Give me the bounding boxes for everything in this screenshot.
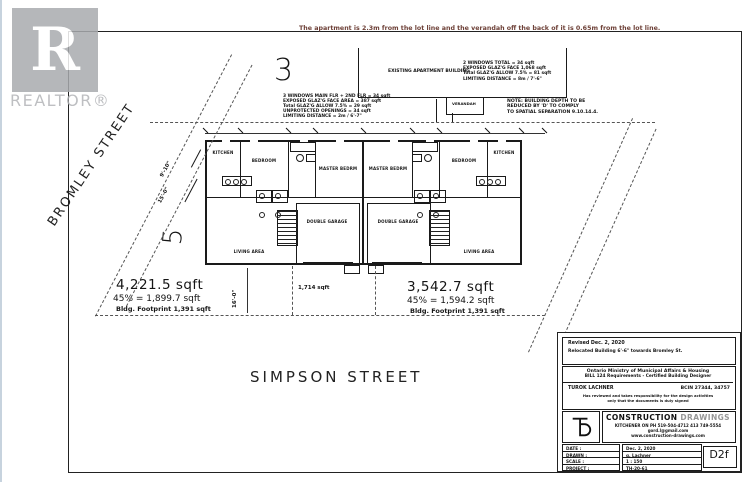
bathtub-symbol bbox=[290, 142, 316, 152]
room-label-living-left: LIVING AREA bbox=[226, 249, 272, 254]
interior-wall bbox=[240, 140, 241, 197]
responsibility-line-1: Has reviewed and takes responsibility fo… bbox=[562, 394, 734, 398]
counter-dot bbox=[479, 179, 485, 185]
glazing-note-right-line: Total GLAZ'G ALLOW 7.5% = 81 sqft bbox=[463, 71, 551, 76]
window-gap bbox=[250, 140, 258, 142]
apartment-label: EXISTING APARTMENT BUILDING bbox=[388, 69, 470, 74]
glazing-note-left: 3 WINDOWS MAIN FLR + 2ND FLR = 34 sqft E… bbox=[283, 94, 390, 119]
room-label-bedroom-right: BEDROOM bbox=[441, 158, 487, 163]
basin-symbol bbox=[306, 154, 316, 162]
room-label-living-right: LIVING AREA bbox=[456, 249, 502, 254]
titleblock-divider bbox=[563, 382, 733, 383]
sink-symbol bbox=[430, 190, 446, 203]
designer-name: TUROK LACHNER bbox=[568, 386, 614, 392]
realtor-logo-letter: R bbox=[30, 15, 80, 85]
counter-dot bbox=[225, 179, 231, 185]
field-label-project: PROJECT : bbox=[562, 464, 620, 472]
rear-lot-line bbox=[150, 122, 655, 123]
counter-dot bbox=[241, 179, 247, 185]
toilet-symbol bbox=[296, 154, 304, 162]
burner-dot bbox=[259, 212, 265, 218]
window-edge bbox=[0, 0, 2, 482]
area-left-footprint: Bldg. Footprint 1,391 sqft bbox=[116, 306, 211, 313]
dim-16-0: 16'-0" bbox=[232, 290, 238, 308]
top-note: The apartment is 2.3m from the lot line … bbox=[299, 25, 660, 32]
burner-dot bbox=[433, 193, 439, 199]
bathtub-symbol bbox=[412, 142, 438, 152]
stoop bbox=[368, 265, 384, 274]
ministry-line-2: BILL 124 Requirements - Certified Buildi… bbox=[562, 375, 734, 380]
window-gap bbox=[336, 140, 344, 142]
burner-dot bbox=[275, 212, 281, 218]
garage-outline-left bbox=[296, 203, 360, 264]
glazing-note-right: 2 WINDOWS TOTAL = 34 sqft EXPOSED GLAZ'G… bbox=[463, 61, 551, 82]
room-label-master-left: MASTER BEDRM bbox=[315, 166, 361, 171]
window-gap bbox=[390, 140, 398, 142]
designer-bcin: BCIN 27344, 34757 bbox=[640, 386, 730, 391]
room-label-garage-left: DOUBLE GARAGE bbox=[304, 219, 350, 224]
verandah-label: VERANDAH bbox=[452, 102, 476, 106]
realtor-watermark: R REALTOR® bbox=[10, 6, 120, 110]
basin-symbol bbox=[412, 154, 422, 162]
duplex-party-wall bbox=[362, 140, 364, 265]
area-left-total: 4,221.5 sqft bbox=[116, 278, 203, 294]
window-gap bbox=[498, 140, 506, 142]
burner-dot bbox=[433, 212, 439, 218]
setback-arrow bbox=[452, 113, 453, 122]
glazing-note-right-line: LIMITING DISTANCE = 8m / 7'-6" bbox=[463, 77, 551, 82]
counter-dot bbox=[487, 179, 493, 185]
street-simpson: SIMPSON STREET bbox=[250, 369, 422, 386]
counter-symbol bbox=[222, 176, 252, 186]
interior-wall bbox=[439, 140, 440, 197]
window-gap bbox=[470, 140, 478, 142]
apartment-wall-right bbox=[566, 48, 567, 98]
dimension-line bbox=[205, 133, 545, 134]
revision-line-2: Relocated Building 6'-6" towards Bromley… bbox=[568, 349, 683, 354]
revision-line-1: Revised Dec. 2, 2020 bbox=[568, 341, 625, 347]
duplex-wall-left bbox=[205, 140, 207, 265]
counter-symbol bbox=[476, 176, 506, 186]
firm-title: CONSTRUCTION DRAWINGS bbox=[602, 414, 734, 423]
responsibility-line-2: only that the documents is duly signed bbox=[562, 399, 734, 403]
interior-wall bbox=[487, 140, 488, 197]
area-right-pct: 45% = 1,594.2 sqft bbox=[407, 296, 494, 306]
counter-dot bbox=[233, 179, 239, 185]
area-left-pct: 45% = 1,899.7 sqft bbox=[113, 294, 200, 304]
room-label-garage-right: DOUBLE GARAGE bbox=[375, 219, 421, 224]
firm-title-strong: CONSTRUCTION bbox=[606, 413, 677, 422]
lot-number-5: 5 bbox=[159, 227, 190, 246]
burner-dot bbox=[259, 193, 265, 199]
realtor-label: REALTOR® bbox=[10, 92, 110, 110]
burner-dot bbox=[417, 193, 423, 199]
field-value-project: TH-20-61 bbox=[622, 464, 702, 472]
setback-arrow bbox=[436, 99, 437, 122]
sheet-number: D2f bbox=[703, 449, 735, 462]
room-label-master-right: MASTER BEDRM bbox=[365, 166, 411, 171]
stove-symbol bbox=[414, 190, 430, 203]
lot-division-line bbox=[375, 266, 376, 315]
apartment-wall-left bbox=[358, 48, 359, 98]
room-label-bedroom-left: BEDROOM bbox=[241, 158, 287, 163]
interior-wall bbox=[288, 140, 289, 197]
firm-title-light: DRAWINGS bbox=[680, 413, 730, 422]
stoop bbox=[344, 265, 360, 274]
sink-symbol bbox=[272, 190, 288, 203]
front-dim-line bbox=[247, 268, 248, 313]
area-right-total: 3,542.7 sqft bbox=[407, 280, 494, 296]
duplex-wall-right bbox=[520, 140, 522, 265]
area-right-footprint: Bldg. Footprint 1,391 sqft bbox=[410, 308, 505, 315]
firm-logo-box bbox=[562, 411, 600, 443]
burner-dot bbox=[417, 212, 423, 218]
spatial-note: NOTE: BUILDING DEPTH TO BE REDUCED BY 'D… bbox=[507, 99, 598, 115]
interior-wall bbox=[205, 197, 522, 198]
area-middle: 1,714 sqft bbox=[298, 285, 330, 291]
firm-contact-line-3: www.construction-drawings.com bbox=[602, 434, 734, 439]
room-label-kitchen-right: KITCHEN bbox=[481, 150, 527, 155]
glazing-note-left-line: LIMITING DISTANCE = 2m / 6'-7" bbox=[283, 114, 390, 119]
spatial-note-line: TO SPATIAL SEPARATION 9.10.14.4. bbox=[507, 110, 598, 115]
construction-drawings-logo-icon bbox=[566, 415, 596, 439]
stove-symbol bbox=[256, 190, 272, 203]
lot-number-3: 3 bbox=[274, 54, 293, 89]
toilet-symbol bbox=[424, 154, 432, 162]
lot-division-line bbox=[292, 266, 293, 315]
counter-dot bbox=[495, 179, 501, 185]
window-gap bbox=[222, 140, 230, 142]
realtor-logo-icon: R bbox=[12, 8, 98, 92]
burner-dot bbox=[275, 193, 281, 199]
